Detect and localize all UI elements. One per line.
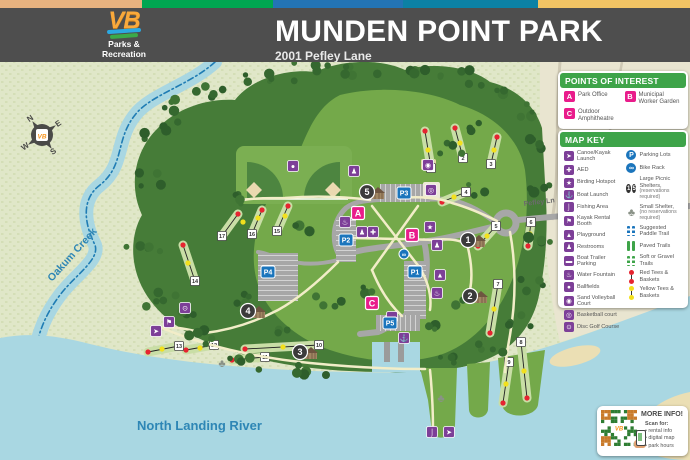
more-info-bullets: rental infodigital mappark hours — [645, 428, 674, 450]
tree — [174, 118, 181, 125]
tree — [420, 65, 430, 75]
more-info-bullet: rental info — [645, 428, 674, 435]
more-info-title: MORE INFO! — [641, 411, 683, 418]
strip-teal — [403, 0, 538, 8]
parking-label: P1 — [411, 270, 420, 277]
fishing-area-glyph: ⌡ — [430, 429, 434, 437]
tree — [437, 72, 443, 78]
tree — [425, 322, 433, 330]
parking-label: P2 — [342, 238, 351, 245]
parking-lots-icon: P — [626, 150, 636, 160]
playground-icon: ▲ — [564, 230, 574, 240]
map-key-left-column: ➤Canoe/Kayak Launch✚AED★Birding Hotspot⚓… — [564, 150, 622, 332]
tree — [208, 335, 215, 342]
yellow-tee-dot — [255, 215, 260, 220]
map-key-label: Yellow Tees & Baskets — [639, 286, 683, 299]
strip-gold — [538, 0, 690, 8]
tree — [292, 222, 299, 229]
poi-letter: B — [409, 230, 416, 240]
poi-item-B: BMunicipal Worker Garden — [625, 91, 683, 106]
birding-hotspot-glyph: ★ — [427, 224, 433, 232]
map-key-label: Birding Hotspot — [577, 179, 615, 185]
tree — [465, 80, 473, 88]
ballfields-area — [236, 146, 352, 204]
yellow-tee-dot — [457, 140, 462, 145]
tree — [476, 120, 482, 126]
disc-golf-course-icon: ⊙ — [564, 322, 574, 332]
poi-item-badge: A — [564, 91, 575, 102]
red-tee-dot — [500, 400, 505, 405]
map-key-label: Ballfields — [577, 284, 599, 290]
tree — [135, 241, 145, 251]
map-key-label: Suggested Paddle Trail — [639, 225, 683, 238]
boat-launch-icon: ⚓ — [564, 190, 574, 200]
tree — [170, 95, 180, 105]
canoe-kayak-launch-icon: ➤ — [564, 151, 574, 161]
tree — [157, 248, 163, 254]
ballfields-icon: ● — [564, 282, 574, 292]
shelter-number: 4 — [245, 306, 250, 316]
yellow-tee-dot — [521, 368, 526, 373]
logo-line2: Recreation — [82, 49, 166, 59]
tree — [458, 150, 465, 157]
points-of-interest-title: POINTS OF INTEREST — [560, 73, 686, 88]
tree — [159, 297, 167, 305]
yellow-tee-dot — [503, 381, 508, 386]
tree — [312, 292, 320, 300]
tree — [284, 327, 291, 334]
tree — [291, 77, 298, 84]
hole-number: 7 — [496, 282, 499, 288]
poi-item-C: COutdoor Amphitheatre — [564, 108, 622, 123]
tree — [169, 106, 179, 116]
strip-green — [142, 0, 273, 8]
map-key-item: ⌡Fishing Area — [564, 202, 622, 212]
tree — [319, 301, 327, 309]
disc-golf-course-glyph: ⊙ — [182, 306, 188, 313]
small-shelter-icon: ♣ — [437, 393, 444, 405]
tree — [138, 183, 143, 188]
red-tee-dot — [183, 347, 188, 352]
tree — [524, 101, 530, 107]
poi-item-A: APark Office — [564, 91, 622, 106]
tree — [153, 298, 159, 304]
tree — [274, 329, 281, 336]
restrooms-glyph: ♟ — [434, 242, 440, 250]
birding-hotspot-icon: ★ — [564, 178, 574, 188]
poi-item-badge: B — [625, 91, 636, 102]
map-key-item: ⚑Kayak Rental Booth — [564, 215, 622, 228]
boat-launch-glyph: ⚓ — [400, 334, 409, 343]
points-of-interest-list: APark OfficeBMunicipal Worker GardenCOut… — [560, 88, 686, 127]
yellow-tee-dot — [491, 147, 496, 152]
tree — [457, 67, 466, 76]
map-key-label: Canoe/Kayak Launch — [577, 150, 622, 163]
tree — [312, 66, 321, 75]
red-tee-dot — [524, 395, 529, 400]
hole-number: 6 — [529, 220, 532, 226]
tree — [304, 226, 314, 236]
map-key-item: PParking Lots — [626, 150, 683, 160]
map-key-label: Boat Trailer Parking — [577, 255, 622, 268]
map-key-label: Parking Lots — [639, 152, 670, 158]
red-tee-dot — [145, 349, 150, 354]
tree — [368, 288, 375, 295]
tree — [517, 276, 524, 283]
points-of-interest-panel: POINTS OF INTEREST APark OfficeBMunicipa… — [558, 71, 688, 129]
tree — [530, 110, 535, 115]
restrooms-glyph: ♟ — [359, 229, 365, 237]
shelter-number: 3 — [297, 347, 302, 357]
aed-icon: ✚ — [564, 165, 574, 175]
restrooms-glyph: ♟ — [351, 168, 357, 176]
map-key-item: ♣Small Shelter,(no reservations required… — [626, 204, 683, 222]
yellow-tee-dot — [280, 344, 285, 349]
tree — [324, 62, 331, 69]
tree — [244, 78, 252, 86]
tree — [135, 168, 144, 177]
red-tee-dot — [235, 211, 240, 216]
north-landing-river-label: North Landing River — [137, 418, 262, 433]
header: VB Parks & Recreation MUNDEN POINT PARK … — [0, 8, 690, 62]
tree — [527, 323, 533, 329]
tree — [448, 353, 456, 361]
yellow-tee-dot — [159, 346, 164, 351]
tree — [245, 353, 255, 363]
map-key-item: ✚AED — [564, 165, 622, 175]
red-tee-dot — [525, 243, 530, 248]
more-info-panel: VB MORE INFO! Scan for: rental infodigit… — [597, 406, 688, 456]
tree — [139, 128, 150, 139]
tree — [535, 140, 544, 149]
map-key-label: Restrooms — [577, 244, 604, 250]
scan-for-label: Scan for: — [645, 421, 668, 427]
park-address: 2001 Pefley Lane — [275, 49, 603, 63]
poi-item-label: Outdoor Amphitheatre — [578, 108, 622, 123]
hole-number: 8 — [519, 340, 522, 346]
tree — [361, 285, 366, 290]
hole-number: 16 — [249, 232, 255, 238]
map-key-item: Suggested Paddle Trail — [626, 225, 683, 238]
tree — [203, 341, 209, 347]
hole-number: 9 — [507, 360, 510, 366]
basketball-court-glyph: ◎ — [428, 188, 434, 195]
poi-item-badge: C — [564, 108, 575, 119]
tree — [322, 371, 330, 379]
tree — [466, 182, 471, 187]
tree — [237, 357, 246, 366]
map-key-item: ∞Bike Rack — [626, 163, 683, 173]
tree — [523, 232, 534, 243]
map-key-panel: MAP KEY ➤Canoe/Kayak Launch✚AED★Birding … — [558, 130, 688, 308]
tree — [209, 90, 218, 99]
logo-line1: Parks & — [82, 39, 166, 49]
yellow-tees-icon — [626, 288, 636, 298]
tree — [540, 184, 548, 192]
map-key-item: ⊙Disc Golf Course — [564, 322, 622, 332]
map-key-item: Red Tees & Baskets — [626, 270, 683, 283]
map-key-item: ●Ballfields — [564, 282, 622, 292]
large-picnic-shelters-icon: 15 — [626, 184, 636, 194]
compass-vb-logo: VB — [37, 134, 46, 141]
tree — [498, 348, 507, 357]
tree — [537, 236, 547, 246]
vb-parks-rec-logo: VB Parks & Recreation — [82, 10, 166, 59]
tree — [494, 88, 500, 94]
restrooms-icon: ♟ — [564, 242, 574, 252]
hole-number: 15 — [274, 229, 280, 235]
tree — [156, 180, 166, 190]
tree — [123, 244, 129, 250]
hole-number: 13 — [176, 344, 182, 350]
parking-label: P4 — [264, 270, 273, 277]
tree — [437, 150, 443, 156]
paved-trails-icon — [626, 241, 636, 251]
map-key-note: (no reservations required) — [639, 210, 683, 221]
map-key-item: Yellow Tees & Baskets — [626, 286, 683, 299]
map-key-item: ▬Boat Trailer Parking — [564, 255, 622, 268]
map-key-item: ★Birding Hotspot — [564, 178, 622, 188]
red-tee-dot — [422, 128, 427, 133]
tree — [268, 76, 274, 82]
map-key-label: Basketball court — [577, 312, 617, 318]
tree — [153, 288, 163, 298]
map-key-item: Soft or Gravel Trails — [626, 254, 683, 267]
hole-number: 3 — [489, 162, 492, 168]
tree — [184, 330, 194, 340]
map-key-item: ➤Canoe/Kayak Launch — [564, 150, 622, 163]
kayak-rental-booth-icon: ⚑ — [564, 216, 574, 226]
poi-item-label: Municipal Worker Garden — [639, 91, 683, 106]
yellow-tee-dot — [491, 306, 496, 311]
sand-volleyball-court-icon: ◉ — [564, 296, 574, 306]
hole-number: 2 — [461, 156, 464, 162]
tree — [246, 294, 252, 300]
fishing-area-icon: ⌡ — [564, 202, 574, 212]
red-tees-icon — [626, 272, 636, 282]
tree — [235, 195, 245, 205]
tree — [471, 192, 478, 199]
qr-code: VB — [601, 410, 637, 446]
tree — [528, 187, 539, 198]
tree — [295, 362, 302, 369]
map-key-title: MAP KEY — [560, 132, 686, 147]
hole-number: 14 — [192, 279, 199, 285]
parking-label: P5 — [386, 321, 395, 328]
yellow-tee-dot — [451, 194, 456, 199]
red-tee-dot — [487, 330, 492, 335]
tree — [142, 302, 151, 311]
map-key-right-column: PParking Lots∞Bike Rack15Large Picnic Sh… — [626, 150, 683, 332]
tree — [243, 72, 248, 77]
page-title: MUNDEN POINT PARK — [275, 16, 603, 48]
poi-letter: A — [355, 208, 362, 218]
tree — [475, 340, 483, 348]
tree — [409, 68, 419, 78]
yellow-tee-dot — [484, 233, 489, 238]
tree — [162, 105, 168, 111]
small-shelter-icon: ♣ — [626, 208, 636, 218]
tree — [227, 356, 233, 362]
tree — [161, 125, 171, 135]
map-key-label: Paved Trails — [639, 243, 670, 249]
tree — [525, 134, 535, 144]
ballfields-glyph: ● — [291, 164, 295, 171]
red-tee-dot — [180, 242, 185, 247]
more-info-bullet: digital map — [645, 435, 674, 442]
playground-glyph: ▲ — [437, 273, 444, 280]
soft-gravel-trails-icon — [626, 256, 636, 266]
red-tee-dot — [259, 207, 264, 212]
tree — [454, 303, 459, 308]
tree — [332, 303, 339, 310]
water-fountain-glyph: ♨ — [434, 290, 440, 298]
map-key-item: ⚓Boat Launch — [564, 190, 622, 200]
map-key-item: ◉Sand Volleyball Court — [564, 295, 622, 308]
tree — [505, 321, 513, 329]
tree — [517, 311, 525, 319]
map-key-item: ♨Water Fountain — [564, 270, 622, 280]
tree — [343, 64, 349, 70]
map-key-item: 15Large Picnic Shelters,(reservations re… — [626, 176, 683, 200]
map-key-label: Water Fountain — [577, 272, 615, 278]
map-key-label: Bike Rack — [639, 165, 664, 171]
parking-label: P3 — [400, 191, 409, 198]
tree — [201, 82, 210, 91]
yellow-tee-dot — [240, 219, 245, 224]
tree — [219, 86, 227, 94]
map-key-label: Disc Golf Course — [577, 324, 619, 330]
more-info-bullet: park hours — [645, 443, 674, 450]
tree — [500, 87, 508, 95]
map-key-label: Sand Volleyball Court — [577, 295, 622, 308]
yellow-tee-dot — [197, 345, 202, 350]
red-tee-dot — [452, 125, 457, 130]
map-key-item: ▲Playground — [564, 230, 622, 240]
basketball-court-icon: ◎ — [564, 310, 574, 320]
kayak-rental-booth-glyph: ⚑ — [166, 319, 172, 327]
brand-color-strip — [0, 0, 690, 8]
canoe-kayak-launch-glyph: ➤ — [153, 329, 159, 336]
tree — [480, 187, 489, 196]
tree — [233, 300, 240, 307]
hole-number: 5 — [494, 224, 497, 230]
water-fountain-icon: ♨ — [564, 270, 574, 280]
bike-rack-glyph: ∞ — [402, 252, 406, 258]
strip-blue — [273, 0, 403, 8]
munden-point-park-map: VB Parks & Recreation MUNDEN POINT PARK … — [0, 0, 690, 460]
tree — [153, 169, 162, 178]
tree — [292, 368, 302, 378]
map-key-label: Soft or Gravel Trails — [639, 254, 683, 267]
poi-letter: C — [369, 298, 376, 308]
aed-glyph: ✚ — [370, 229, 376, 237]
map-key-item: ◎Basketball court — [564, 310, 622, 320]
tree — [438, 355, 443, 360]
tree — [172, 292, 180, 300]
tree — [256, 366, 263, 373]
suggested-paddle-trail-icon — [626, 226, 636, 236]
map-key-item: Paved Trails — [626, 241, 683, 251]
tree — [337, 297, 346, 306]
tree — [517, 113, 525, 121]
qr-vb-logo: VB — [615, 427, 624, 433]
yellow-tee-dot — [425, 147, 430, 152]
poi-item-label: Park Office — [578, 91, 608, 99]
map-key-note: (reservations required) — [639, 189, 683, 200]
map-key-label: Red Tees & Baskets — [639, 270, 683, 283]
yellow-tee-dot — [185, 260, 190, 265]
tree — [190, 311, 197, 318]
canoe-kayak-launch-glyph: ➤ — [446, 430, 452, 437]
yellow-tee-dot — [282, 213, 287, 218]
map-key-label: Kayak Rental Booth — [577, 215, 622, 228]
small-shelter-icon: ♣ — [218, 358, 225, 370]
tree — [340, 69, 349, 78]
map-key-label: Boat Launch — [577, 192, 608, 198]
map-key-label: Playground — [577, 232, 605, 238]
water-fountain-glyph: ♨ — [342, 219, 348, 227]
map-key-item: ♟Restrooms — [564, 242, 622, 252]
hole-number: 17 — [219, 234, 225, 240]
shelter-number: 2 — [467, 291, 472, 301]
tree — [478, 82, 485, 89]
tree — [193, 328, 203, 338]
tree — [547, 239, 553, 245]
map-key-label: Fishing Area — [577, 204, 608, 210]
map-key-label: AED — [577, 167, 589, 173]
tree — [466, 125, 473, 132]
tree — [522, 287, 531, 296]
tree — [535, 276, 543, 284]
tree — [465, 65, 475, 75]
tree — [192, 87, 201, 96]
tree — [448, 141, 457, 150]
sand-volleyball-court-glyph: ◉ — [425, 163, 431, 170]
red-tee-dot — [494, 134, 499, 139]
tree — [144, 242, 153, 251]
tree — [490, 346, 496, 352]
bike-rack-icon: ∞ — [626, 163, 636, 173]
boat-trailer-parking-icon: ▬ — [564, 256, 574, 266]
shelter-number: 1 — [465, 235, 470, 245]
red-tee-dot — [242, 346, 247, 351]
shelter-number: 5 — [364, 187, 369, 197]
hole-number: 10 — [316, 343, 322, 349]
red-tee-dot — [285, 203, 290, 208]
tree — [373, 69, 382, 78]
